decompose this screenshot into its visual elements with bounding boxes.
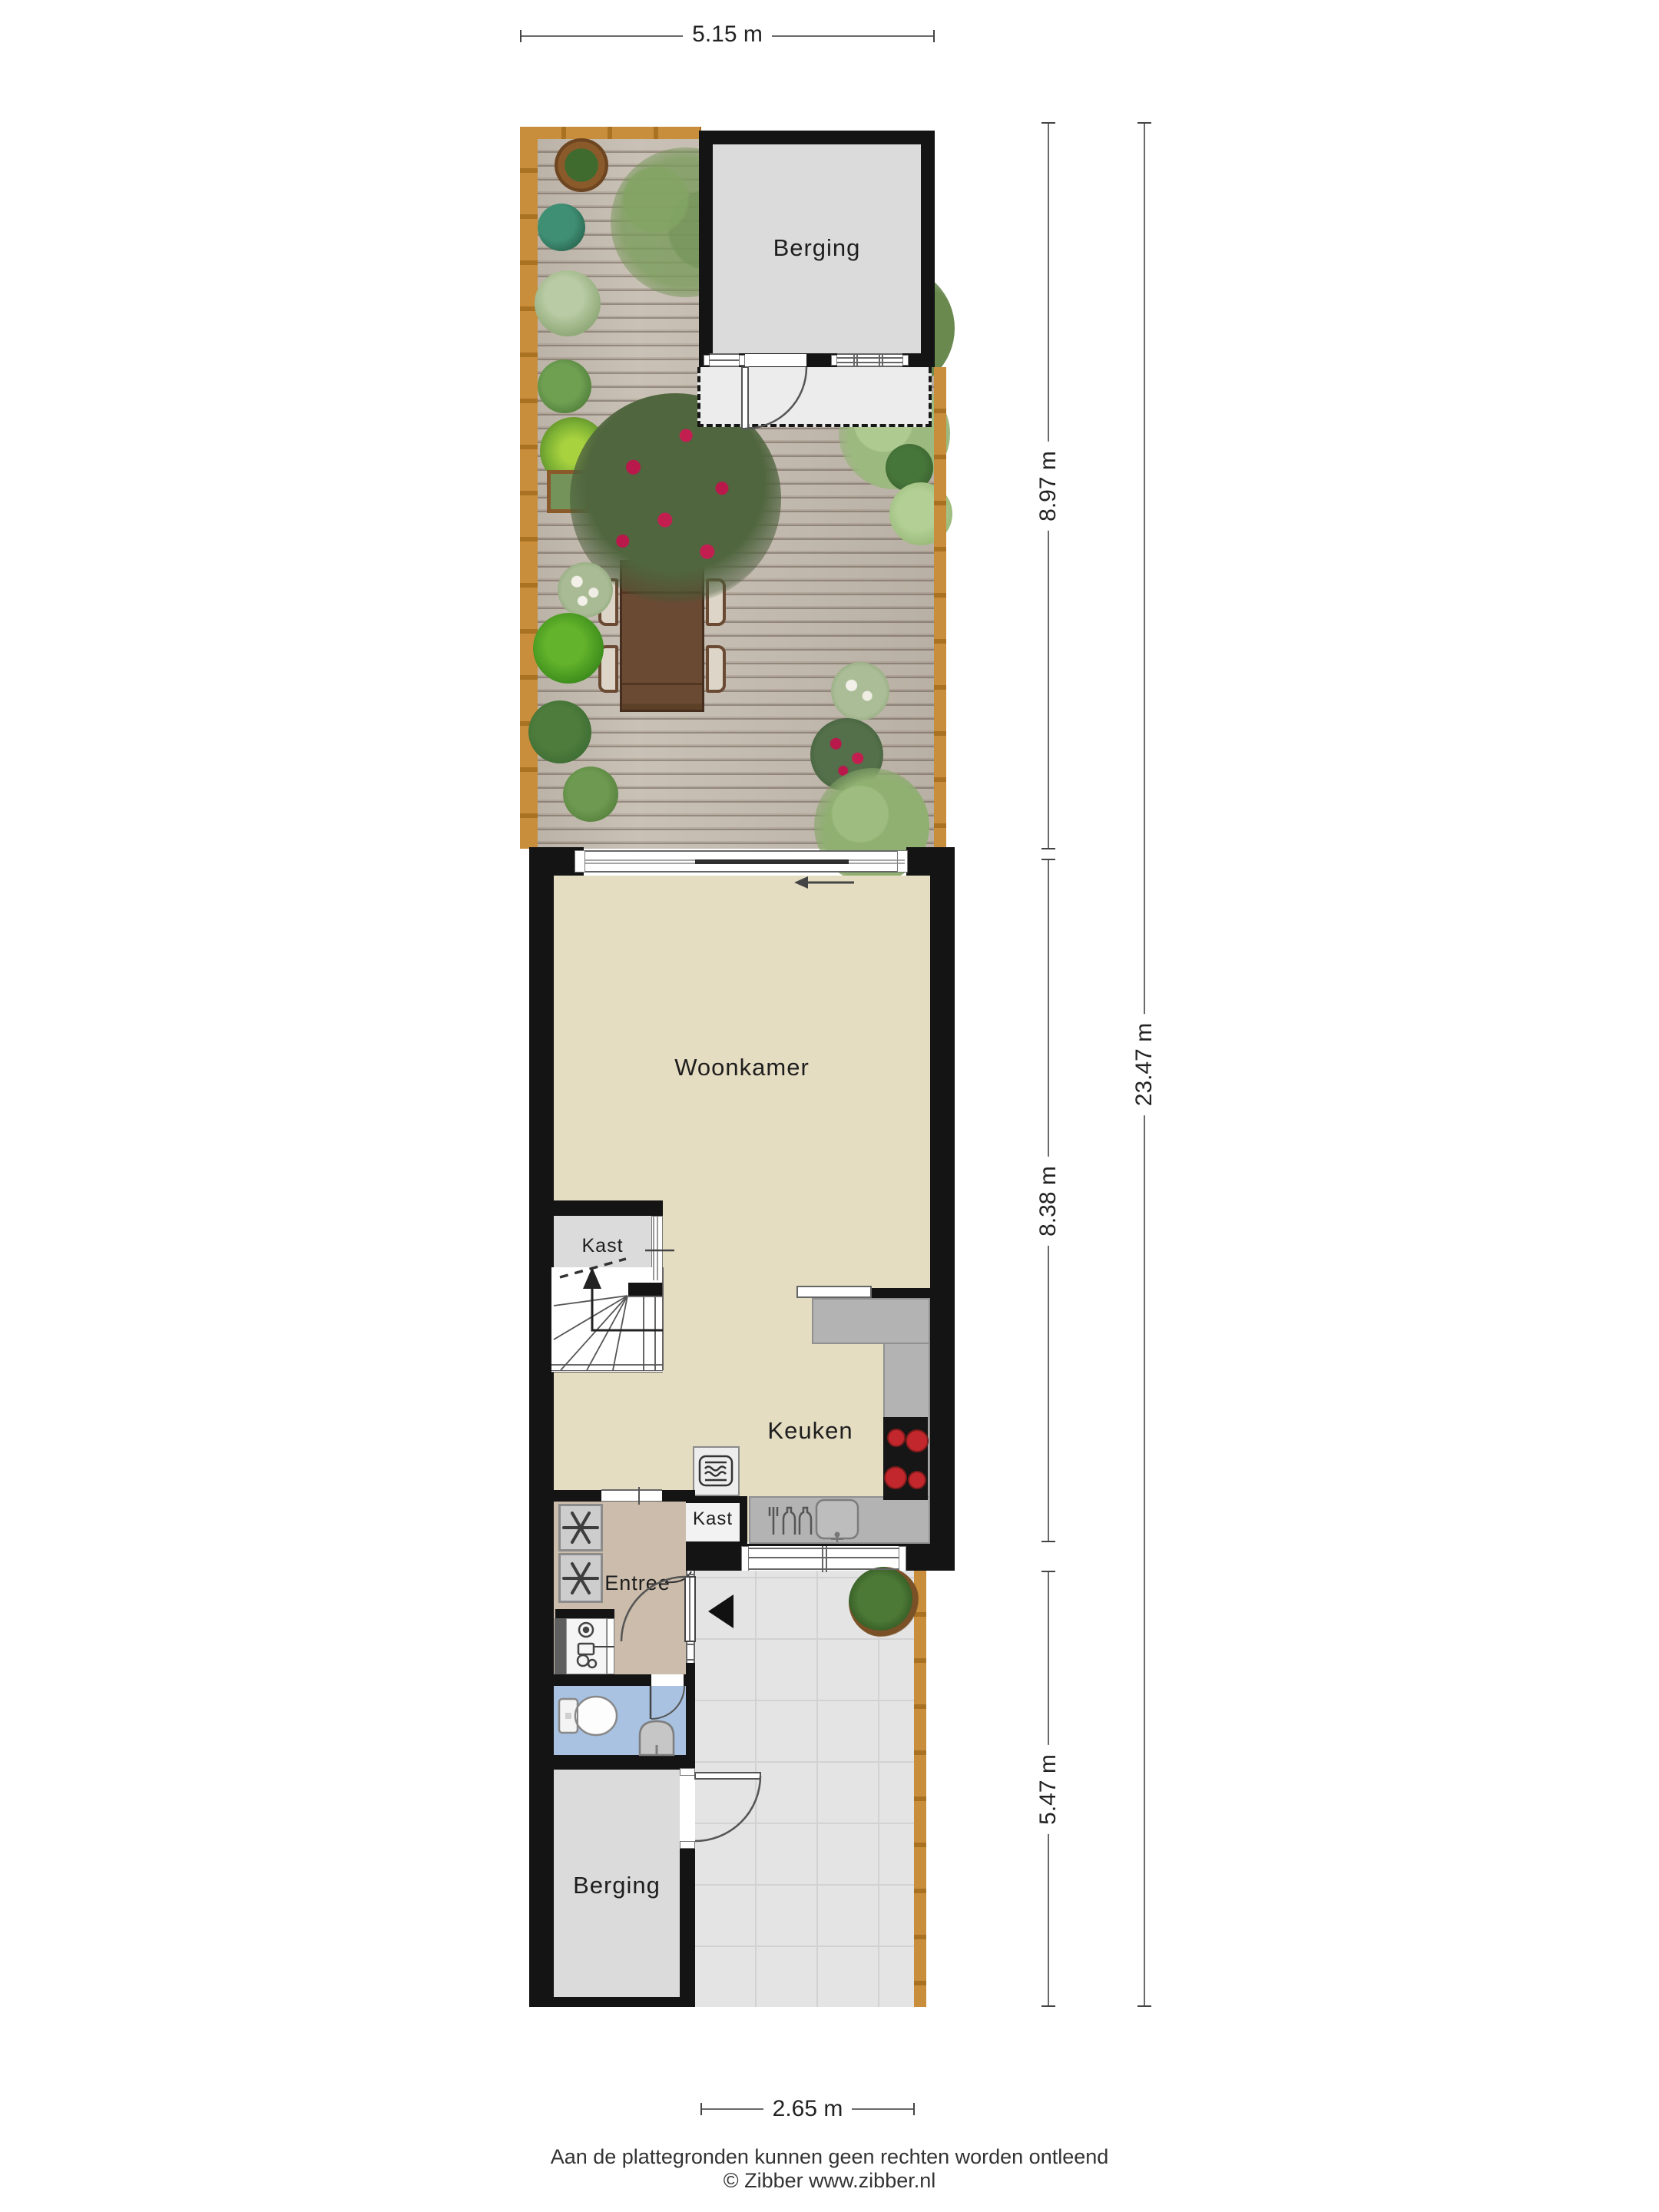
house-wall-left [529,847,554,2007]
kitchen-pass-window [796,1286,872,1298]
concrete-pad [697,367,932,427]
cooktop [883,1417,928,1500]
sliding-door [584,850,906,873]
door-jamb [831,355,837,366]
room-label-woonkamer: Woonkamer [554,1054,930,1081]
entree-divider-wall-right [662,1490,695,1502]
kast-lower-wall-bottom [684,1541,747,1571]
dim-tick [1137,122,1151,124]
room-label-kast-upper: Kast [554,1235,651,1257]
room-label-berging-top: Berging [713,234,921,262]
dim-tick [1041,1541,1055,1542]
dim-tick [1041,848,1055,849]
entree-divider-wall-left [554,1490,601,1502]
leafy-plant [533,613,604,684]
dim-tick [1041,1571,1055,1572]
berging-top-door-opening [745,354,806,366]
dim-label-house: 8.38 m [1035,1157,1061,1246]
door-jamb [739,355,745,366]
bathroom-door-opening [651,1674,684,1686]
berging-bottom-wall-top [529,1759,695,1770]
dim-label-bottom: 2.65 m [701,2096,914,2122]
berging-bottom-wall-bottom [529,1997,695,2007]
dim-label-garden: 8.97 m [1035,442,1061,531]
footer-credit: © Zibber www.zibber.nl [0,2169,1659,2193]
dryer [558,1553,603,1603]
kitchen-counter-bottom [749,1496,930,1544]
window-jamb [899,1546,906,1572]
dim-tick [1041,122,1055,124]
potted-plant [555,138,608,192]
washing-machine [558,1504,603,1551]
meterkast-door [607,1618,614,1674]
dim-label-top: 5.15 m [521,22,934,48]
flower-bush-white [558,562,613,618]
shrub [535,270,601,336]
stairs-wall-stub [628,1283,663,1296]
microwave [693,1446,740,1496]
window-jamb [902,355,909,366]
room-label-kast-lower: Kast [686,1508,740,1530]
room-label-keuken: Keuken [733,1417,887,1445]
front-door-strip [686,1571,695,1663]
window-jamb [704,355,710,366]
shrub [563,767,618,822]
footer-disclaimer: Aan de plattegronden kunnen geen rechten… [0,2145,1659,2169]
house-wall-right [930,847,955,1571]
entree-divider-opening [601,1489,662,1502]
meterkast-floor [566,1618,607,1674]
kast-upper-wall [551,1200,663,1216]
dim-tick [1041,2005,1055,2007]
berging-top-window-right [837,353,902,367]
dim-label-patio: 5.47 m [1035,1745,1061,1834]
room-label-berging-bottom: Berging [554,1872,680,1899]
floorplan-sheet: Berging Woonkamer Kast Keuken Kast En [0,0,1659,2212]
sliding-door-jamb [575,850,585,873]
dim-tick [1137,2005,1151,2007]
garden-fence-top [520,127,701,139]
patio-fence-right [914,1571,926,2007]
kitchen-counter-top [812,1298,930,1344]
garden-fence-right [934,367,946,849]
berging-bottom-door-opening [680,1776,695,1841]
door-jamb [680,1841,695,1849]
meterkast-cupboard [555,1618,566,1674]
shrub [538,204,585,251]
flower-bush-white [831,662,889,720]
garden-chair [706,645,726,693]
patio-potted-plant [849,1567,919,1637]
dim-label-total: 23.47 m [1131,1014,1157,1115]
berging-top-window-left [710,353,739,367]
sliding-door-jamb [897,850,908,873]
dim-tick [1041,859,1055,860]
bathroom-floor [554,1686,686,1755]
meterkast-wall-top [555,1609,614,1618]
window-jamb [741,1546,749,1572]
shrub [538,359,591,413]
entrance-arrow-icon [708,1594,733,1628]
house-wall-top-right [906,847,955,876]
door-jamb [680,1768,695,1776]
shrub [528,700,591,763]
